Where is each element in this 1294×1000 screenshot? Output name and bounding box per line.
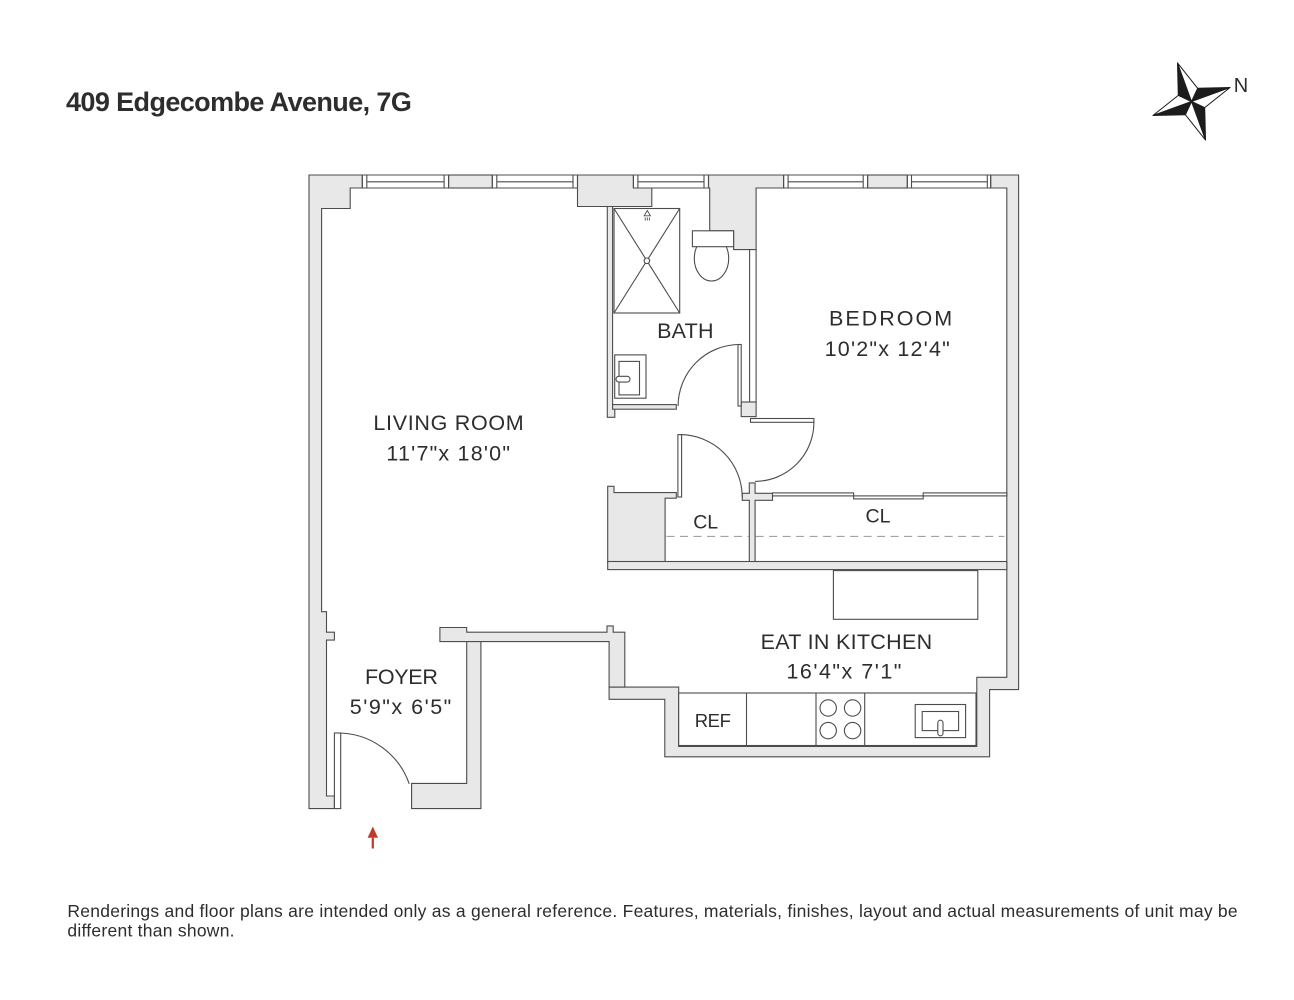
svg-text:CL: CL: [693, 511, 718, 533]
svg-text:FOYER: FOYER: [365, 665, 438, 689]
svg-text:N: N: [1234, 75, 1248, 97]
svg-text:11'7"x 18'0": 11'7"x 18'0": [386, 442, 511, 466]
svg-text:409 Edgecombe Avenue, 7G: 409 Edgecombe Avenue, 7G: [66, 87, 411, 117]
svg-text:EAT IN KITCHEN: EAT IN KITCHEN: [761, 630, 933, 654]
svg-text:REF: REF: [695, 710, 731, 731]
svg-text:10'2"x 12'4": 10'2"x 12'4": [825, 337, 951, 361]
svg-text:different than shown.: different than shown.: [67, 921, 234, 941]
svg-text:LIVING ROOM: LIVING ROOM: [373, 411, 524, 435]
svg-text:5'9"x 6'5": 5'9"x 6'5": [350, 695, 453, 719]
svg-text:BEDROOM: BEDROOM: [829, 307, 954, 331]
svg-text:CL: CL: [866, 505, 891, 527]
svg-text:Renderings and floor plans are: Renderings and floor plans are intended …: [67, 901, 1238, 921]
svg-text:16'4"x 7'1": 16'4"x 7'1": [786, 659, 902, 683]
svg-text:BATH: BATH: [657, 319, 714, 343]
